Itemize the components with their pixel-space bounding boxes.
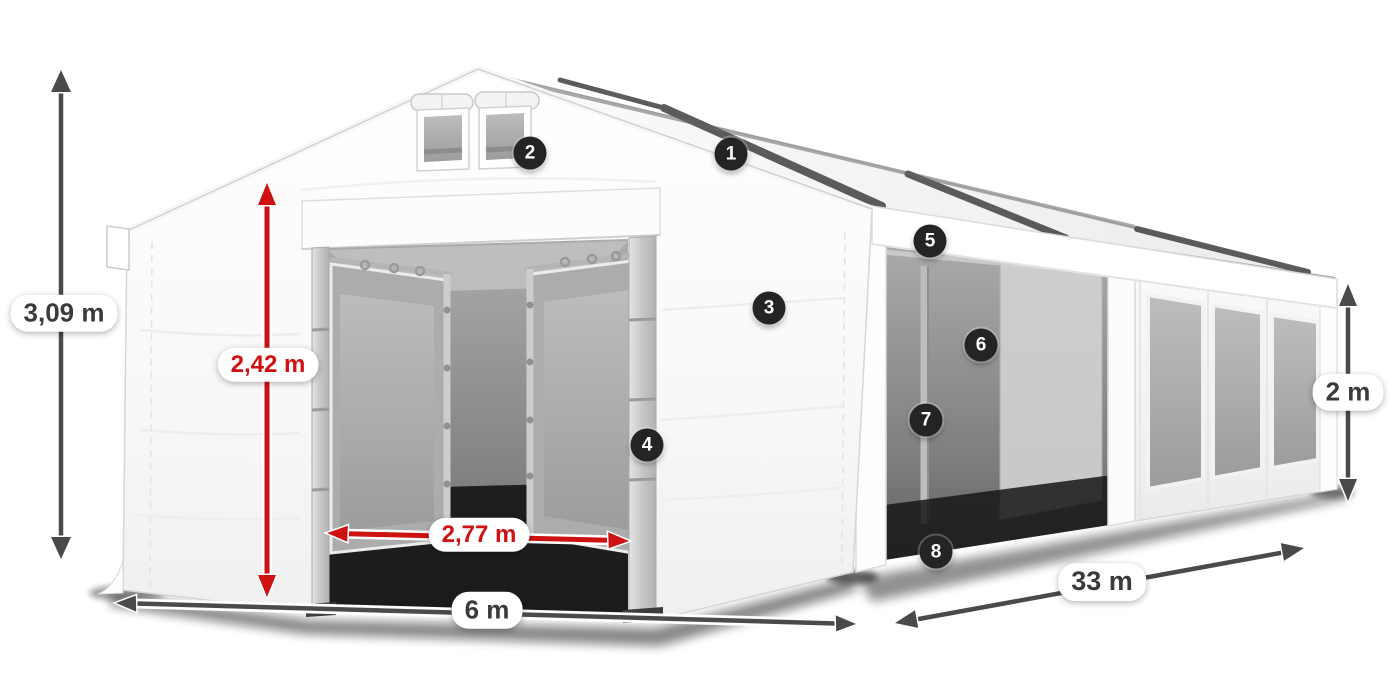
callout-6-side-curtain[interactable]: 6 xyxy=(965,329,998,362)
door-opening xyxy=(306,236,663,623)
door-panel-left xyxy=(317,258,451,553)
left-eave-cap xyxy=(107,226,129,270)
dimension-label-length: 33 m xyxy=(1058,563,1146,601)
dimension-label-span-width: 6 m xyxy=(452,592,523,629)
callout-7-inner-pole[interactable]: 7 xyxy=(910,404,943,437)
callout-1-roof-frame[interactable]: 1 xyxy=(715,138,748,171)
side-windows xyxy=(1148,295,1318,489)
tent-illustration xyxy=(0,0,1400,700)
mid-post xyxy=(1108,248,1135,526)
callout-5-valance[interactable]: 5 xyxy=(914,225,947,258)
dimension-label-door-width: 2,77 m xyxy=(429,518,530,552)
dimension-label-inner-height: 2,42 m xyxy=(218,348,319,382)
dimension-label-side-height: 2 m xyxy=(1313,374,1384,411)
callout-3-front-wall[interactable]: 3 xyxy=(753,292,786,325)
callout-4-door-panel[interactable]: 4 xyxy=(631,429,664,462)
door-panel-right xyxy=(527,252,642,554)
dimension-label-total-height: 3,09 m xyxy=(11,295,118,332)
callout-2-vent-window[interactable]: 2 xyxy=(514,137,547,170)
tent-dimension-diagram: 3,09 m 2,42 m 2,77 m 6 m 33 m 2 m 1 2 3 … xyxy=(0,0,1400,700)
callout-8-base-skirt[interactable]: 8 xyxy=(920,536,953,569)
